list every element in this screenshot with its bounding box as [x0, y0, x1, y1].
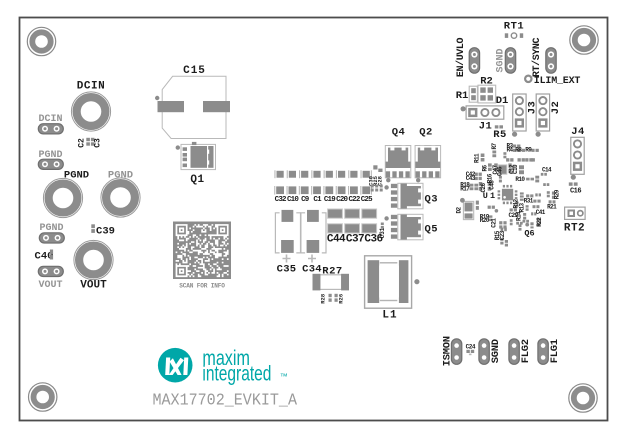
svg-text:C10: C10: [287, 196, 299, 204]
svg-text:RT1: RT1: [504, 21, 524, 33]
svg-text:R22: R22: [536, 217, 543, 227]
svg-text:C37: C37: [346, 234, 364, 246]
svg-text:RT2: RT2: [564, 223, 585, 235]
svg-text:C21: C21: [490, 218, 497, 228]
svg-text:Q3: Q3: [424, 193, 438, 205]
svg-text:C3: C3: [94, 138, 103, 148]
svg-text:FLG2: FLG2: [520, 339, 532, 363]
svg-text:C41: C41: [536, 209, 546, 216]
svg-text:Q5: Q5: [424, 223, 438, 235]
svg-text:ISMON: ISMON: [442, 336, 454, 366]
svg-text:C10: C10: [512, 164, 519, 174]
svg-text:C39: C39: [96, 225, 115, 237]
svg-text:DCIN: DCIN: [77, 81, 105, 93]
svg-text:R17: R17: [460, 185, 470, 192]
svg-text:C22: C22: [348, 196, 360, 204]
svg-text:R20: R20: [480, 217, 490, 224]
svg-text:ILIM_EXT: ILIM_EXT: [534, 76, 581, 87]
svg-text:C15: C15: [183, 65, 206, 77]
svg-text:C48: C48: [489, 180, 496, 190]
svg-text:D2: D2: [456, 207, 463, 214]
svg-text:RT/SYNC: RT/SYNC: [531, 38, 543, 78]
svg-text:C20: C20: [336, 196, 348, 204]
svg-text:C14: C14: [542, 166, 552, 173]
svg-text:R4: R4: [506, 147, 513, 154]
svg-text:C28: C28: [376, 175, 383, 186]
svg-text:R29: R29: [553, 189, 560, 199]
svg-text:D1: D1: [496, 95, 509, 107]
svg-text:Q4: Q4: [392, 127, 406, 139]
svg-text:R26: R26: [337, 294, 344, 304]
svg-text:VOUT: VOUT: [38, 280, 62, 291]
svg-text:VOUT: VOUT: [80, 279, 107, 291]
svg-text:FLG1: FLG1: [549, 339, 561, 363]
svg-text:R6: R6: [482, 165, 489, 172]
svg-text:™: ™: [280, 372, 288, 381]
svg-text:C25: C25: [361, 196, 373, 204]
svg-text:R28: R28: [319, 293, 326, 304]
svg-text:integrated: integrated: [202, 362, 271, 385]
svg-text:EN/UVLO: EN/UVLO: [455, 38, 467, 78]
svg-text:Q6: Q6: [524, 229, 534, 239]
svg-text:R9: R9: [525, 147, 532, 154]
svg-text:C24: C24: [466, 343, 476, 350]
svg-text:C23: C23: [499, 230, 506, 240]
svg-text:R8: R8: [515, 147, 522, 154]
svg-text:R21: R21: [547, 204, 557, 211]
svg-text:C44: C44: [327, 234, 346, 246]
svg-text:C1: C1: [313, 196, 322, 204]
svg-text:C2: C2: [78, 138, 87, 148]
svg-text:MAX17702_EVKIT_A: MAX17702_EVKIT_A: [152, 390, 297, 409]
svg-text:C32: C32: [275, 196, 287, 204]
svg-text:R10: R10: [515, 176, 525, 183]
svg-text:R5: R5: [493, 129, 507, 141]
svg-text:C46: C46: [497, 166, 504, 176]
svg-text:L1: L1: [382, 310, 397, 322]
svg-text:Q2: Q2: [419, 127, 433, 139]
svg-text:R11: R11: [473, 153, 480, 163]
svg-text:C35: C35: [277, 263, 297, 275]
svg-text:R1: R1: [456, 90, 469, 102]
svg-text:J1: J1: [479, 121, 493, 133]
svg-text:J4: J4: [571, 126, 585, 138]
svg-text:U1: U1: [483, 191, 498, 201]
svg-text:C31: C31: [379, 227, 386, 238]
svg-text:C9: C9: [301, 196, 310, 204]
svg-text:Q1: Q1: [190, 174, 204, 186]
svg-text:C19: C19: [324, 196, 336, 204]
svg-text:C34: C34: [302, 263, 322, 275]
svg-text:R31: R31: [524, 198, 534, 205]
svg-text:C16: C16: [570, 188, 581, 196]
svg-text:J2: J2: [550, 101, 562, 115]
svg-text:SGND: SGND: [490, 339, 502, 363]
svg-text:R12: R12: [512, 199, 519, 209]
svg-text:SCAN FOR INFO: SCAN FOR INFO: [179, 282, 225, 289]
svg-text:R7: R7: [491, 143, 498, 150]
